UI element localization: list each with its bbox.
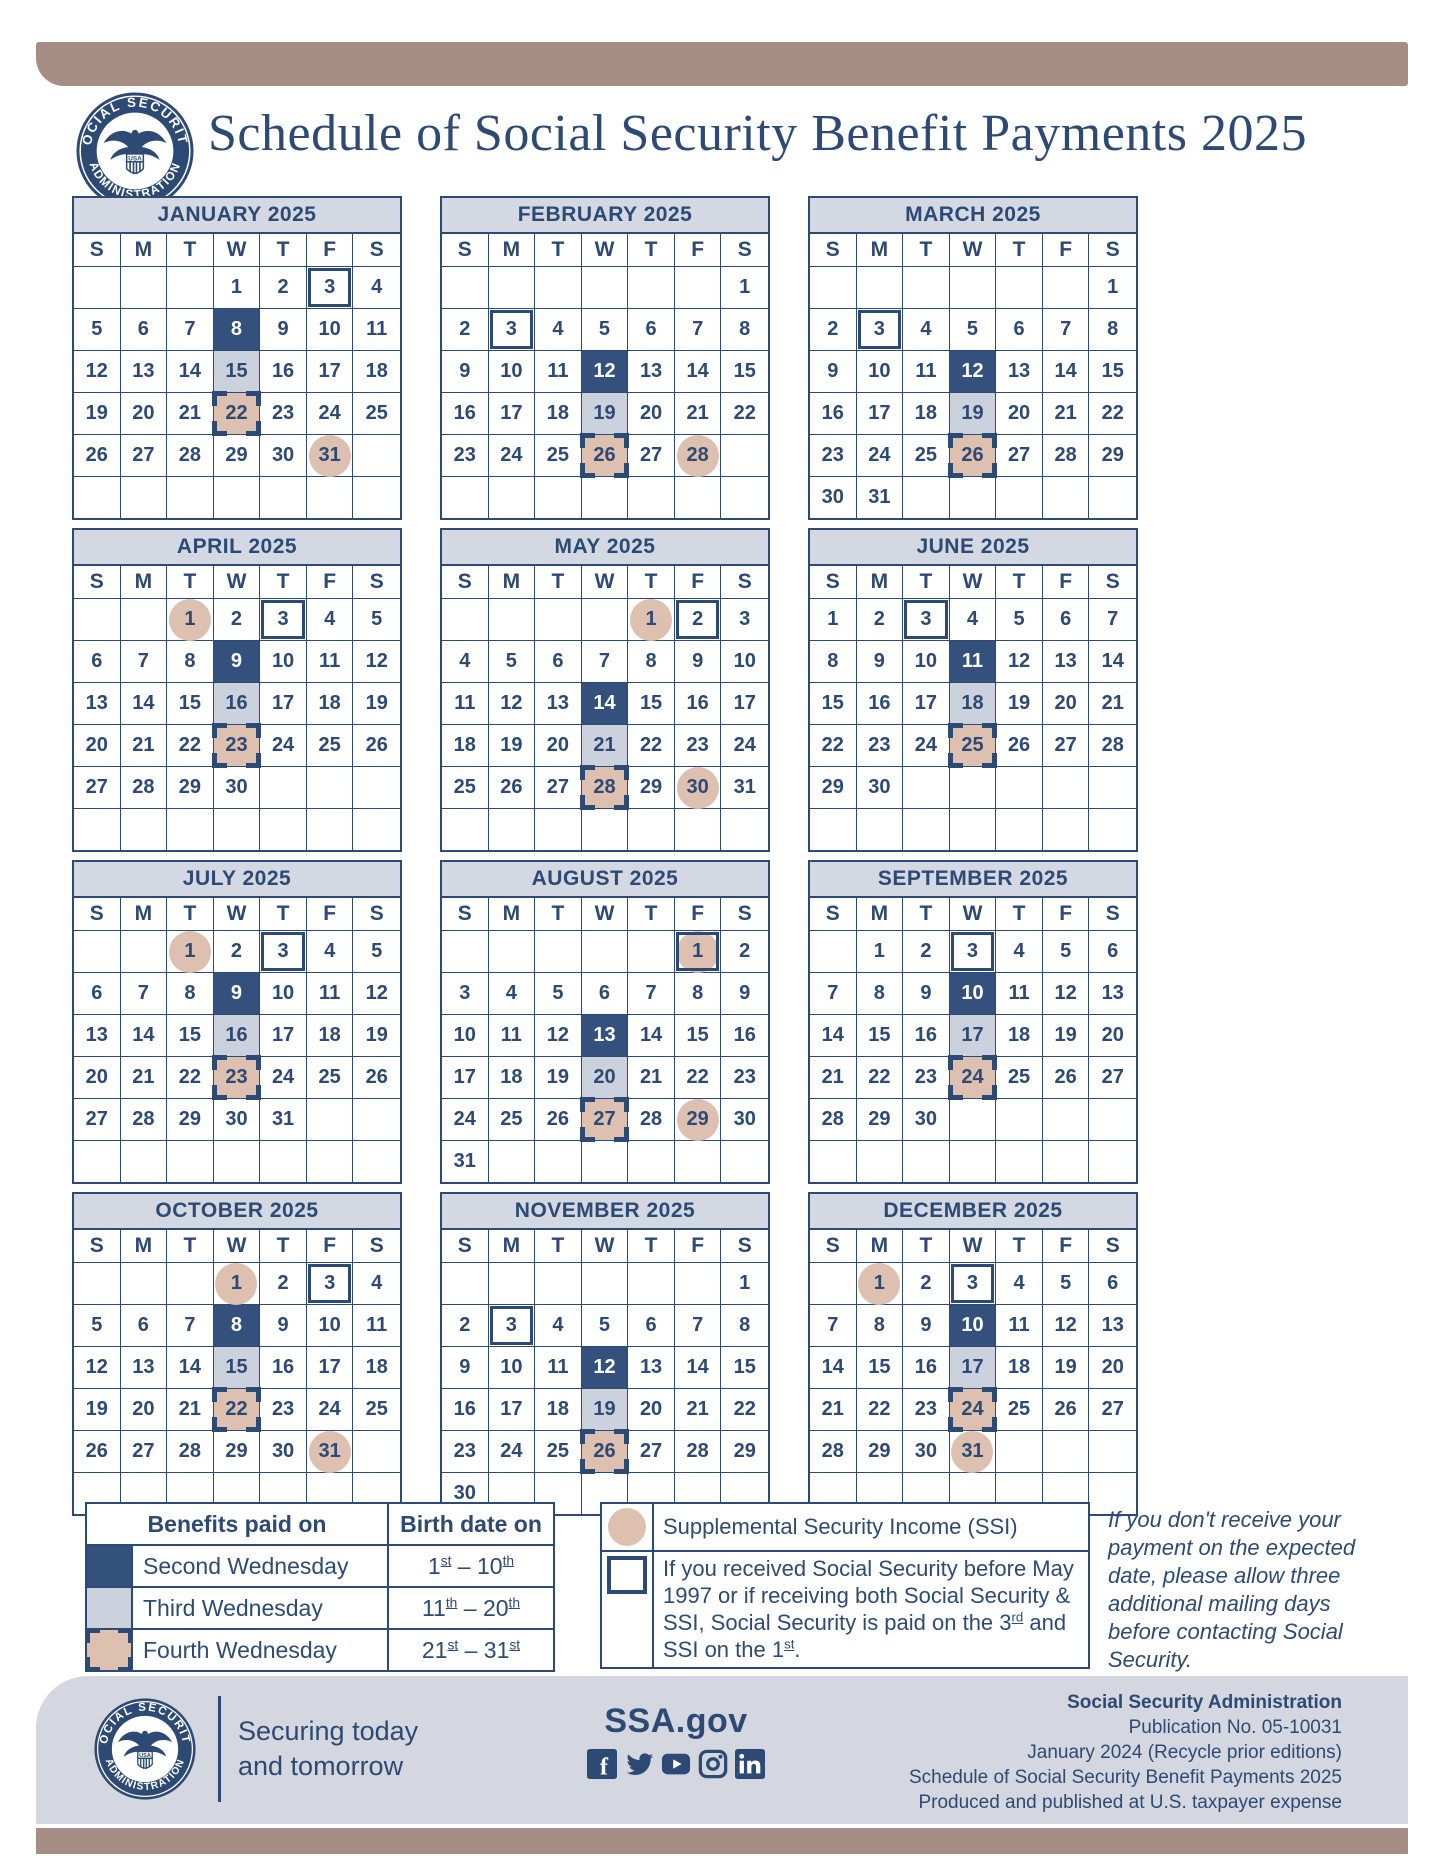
day-number: 17 [272, 1024, 294, 1046]
corner-mark [614, 1127, 629, 1142]
day-16: 16 [675, 683, 722, 725]
ssi-circle-swatch [608, 1508, 646, 1546]
ssa-gov-link[interactable]: SSA.gov [536, 1702, 816, 1741]
day-number: 20 [1102, 1024, 1124, 1046]
weekday-label: S [353, 898, 400, 931]
day-5: 5 [353, 599, 400, 641]
day-number: 13 [547, 692, 569, 714]
day-empty [1089, 1099, 1136, 1141]
weekday-label: F [1043, 234, 1090, 267]
day-number: 8 [231, 318, 242, 340]
day-number: 19 [1055, 1024, 1077, 1046]
weekday-label: S [721, 1230, 768, 1263]
day-number: 15 [640, 692, 662, 714]
weekday-label: S [1089, 898, 1136, 931]
day-number: 4 [552, 318, 563, 340]
publication-line: Social Security Administration [909, 1690, 1342, 1715]
day-30: 30 [214, 767, 261, 809]
weekday-label: T [260, 234, 307, 267]
day-number: 18 [319, 1024, 341, 1046]
day-18: 18 [442, 725, 489, 767]
linkedin-icon[interactable] [735, 1749, 765, 1779]
corner-mark [982, 723, 997, 738]
day-empty [167, 1141, 214, 1182]
day-number: 27 [86, 1108, 108, 1130]
facebook-icon[interactable]: f [587, 1749, 617, 1779]
day-number: 18 [961, 692, 983, 714]
legend-label: Second Wednesday [131, 1546, 387, 1586]
corner-mark [212, 1055, 227, 1070]
day-9: 9 [260, 1305, 307, 1347]
day-number: 8 [646, 650, 657, 672]
day-empty [167, 267, 214, 309]
day-empty [582, 267, 629, 309]
day-10: 10 [307, 309, 354, 351]
day-number: 25 [454, 776, 476, 798]
corner-mark [246, 391, 261, 406]
day-number: 25 [547, 1440, 569, 1462]
day-number: 5 [599, 1314, 610, 1336]
day-number: 22 [1102, 402, 1124, 424]
day-number: 13 [86, 692, 108, 714]
day-6: 6 [121, 309, 168, 351]
day-20: 20 [1089, 1347, 1136, 1389]
day-9: 9 [903, 1305, 950, 1347]
day-empty [214, 809, 261, 850]
day-number: 13 [640, 360, 662, 382]
weekday-label: T [628, 898, 675, 931]
day-23: 23 [260, 1389, 307, 1431]
day-empty [1043, 267, 1090, 309]
day-17: 17 [307, 1347, 354, 1389]
weekday-label: S [810, 234, 857, 267]
day-empty [628, 1141, 675, 1182]
day-number: 10 [500, 360, 522, 382]
day-number: 31 [734, 776, 756, 798]
day-16: 16 [442, 393, 489, 435]
month-august: AUGUST 2025SMTWTFS1234567891011121314151… [440, 860, 770, 1184]
day-20: 20 [628, 393, 675, 435]
day-25: 25 [996, 1057, 1043, 1099]
day-3: 3 [950, 1263, 997, 1305]
day-2: 2 [721, 931, 768, 973]
day-number: 6 [1107, 940, 1118, 962]
day-number: 20 [547, 734, 569, 756]
range-to: 31 [484, 1637, 510, 1663]
day-number: 19 [961, 402, 983, 424]
day-empty [810, 1141, 857, 1182]
weekday-header-row: SMTWTFS [74, 898, 400, 931]
day-16: 16 [903, 1347, 950, 1389]
day-19: 19 [582, 393, 629, 435]
corner-mark [246, 723, 261, 738]
corner-mark [614, 765, 629, 780]
day-empty [582, 809, 629, 850]
month-december: DECEMBER 2025SMTWTFS12345678910111213141… [808, 1192, 1138, 1516]
day-number: 22 [687, 1066, 709, 1088]
day-number: 11 [501, 1024, 522, 1046]
weekday-label: S [353, 1230, 400, 1263]
month-days: 1234567891011121314151617181920212223242… [810, 267, 1136, 518]
day-empty [721, 477, 768, 518]
day-empty [1089, 767, 1136, 809]
day-22: 22 [628, 725, 675, 767]
day-number: 18 [500, 1066, 522, 1088]
day-19: 19 [1043, 1015, 1090, 1057]
day-number: 1 [1107, 276, 1118, 298]
day-empty [903, 1141, 950, 1182]
corner-mark [580, 1127, 595, 1142]
day-number: 21 [179, 1398, 201, 1420]
day-empty [74, 267, 121, 309]
weekday-label: T [996, 234, 1043, 267]
day-empty [1043, 1099, 1090, 1141]
day-27: 27 [628, 435, 675, 477]
weekday-label: S [74, 898, 121, 931]
day-number: 25 [961, 734, 983, 756]
day-number: 20 [132, 1398, 154, 1420]
svg-text:f: f [600, 1753, 609, 1779]
day-number: 4 [552, 1314, 563, 1336]
day-12: 12 [353, 641, 400, 683]
day-31: 31 [260, 1099, 307, 1141]
day-22: 22 [167, 725, 214, 767]
day-number: 14 [593, 692, 615, 714]
day-27: 27 [74, 767, 121, 809]
day-number: 19 [1008, 692, 1030, 714]
weekday-label: M [121, 1230, 168, 1263]
day-number: 10 [961, 1314, 983, 1336]
day-empty [996, 809, 1043, 850]
day-4: 4 [903, 309, 950, 351]
ordinal-sup: st [441, 1553, 452, 1568]
day-number: 21 [1102, 692, 1124, 714]
day-number: 30 [868, 776, 890, 798]
legend-header-row: Benefits paid on Birth date on [87, 1504, 553, 1546]
day-28: 28 [167, 1431, 214, 1473]
day-number: 28 [1055, 444, 1077, 466]
day-23: 23 [721, 1057, 768, 1099]
tagline-line: Securing today [238, 1714, 418, 1749]
day-number: 11 [1008, 1314, 1029, 1336]
day-empty [353, 1431, 400, 1473]
day-19: 19 [353, 683, 400, 725]
day-3: 3 [950, 931, 997, 973]
weekday-label: T [903, 1230, 950, 1263]
day-7: 7 [628, 973, 675, 1015]
day-number: 24 [500, 444, 522, 466]
day-27: 27 [121, 1431, 168, 1473]
day-30: 30 [675, 767, 722, 809]
day-number: 29 [1102, 444, 1124, 466]
day-empty [535, 267, 582, 309]
day-number: 25 [915, 444, 937, 466]
day-number: 26 [366, 734, 388, 756]
day-number: 8 [739, 318, 750, 340]
day-number: 11 [547, 1356, 568, 1378]
month-title: DECEMBER 2025 [810, 1194, 1136, 1230]
day-empty [353, 767, 400, 809]
pre1997-legend-row: If you received Social Security before M… [602, 1552, 1088, 1667]
day-6: 6 [996, 309, 1043, 351]
day-number: 21 [687, 402, 709, 424]
day-number: 20 [640, 1398, 662, 1420]
day-empty [535, 599, 582, 641]
day-14: 14 [167, 351, 214, 393]
month-title: SEPTEMBER 2025 [810, 862, 1136, 898]
day-1: 1 [214, 267, 261, 309]
day-number: 27 [1102, 1066, 1124, 1088]
day-13: 13 [996, 351, 1043, 393]
range-to: 10 [477, 1553, 503, 1579]
day-17: 17 [950, 1015, 997, 1057]
day-number: 18 [366, 360, 388, 382]
day-number: 8 [739, 1314, 750, 1336]
day-9: 9 [214, 973, 261, 1015]
day-number: 5 [1014, 608, 1025, 630]
weekday-label: F [307, 898, 354, 931]
footer: SOCIAL SECURITYADMINISTRATIONUSA Securin… [36, 1676, 1408, 1824]
day-empty [857, 1141, 904, 1182]
day-number: 5 [967, 318, 978, 340]
day-2: 2 [442, 1305, 489, 1347]
day-number: 15 [179, 692, 201, 714]
corner-mark [85, 1657, 100, 1672]
day-21: 21 [121, 1057, 168, 1099]
day-number: 27 [593, 1108, 615, 1130]
day-number: 16 [454, 402, 476, 424]
day-26: 26 [582, 435, 629, 477]
day-number: 28 [593, 776, 615, 798]
corner-mark [246, 753, 261, 768]
day-empty [857, 809, 904, 850]
day-number: 27 [86, 776, 108, 798]
day-number: 6 [1060, 608, 1071, 630]
corner-mark [580, 765, 595, 780]
corner-mark [212, 391, 227, 406]
corner-mark [212, 1085, 227, 1100]
day-number: 15 [687, 1024, 709, 1046]
day-number: 30 [915, 1108, 937, 1130]
day-23: 23 [214, 725, 261, 767]
day-number: 13 [1102, 982, 1124, 1004]
day-25: 25 [535, 1431, 582, 1473]
day-17: 17 [442, 1057, 489, 1099]
day-5: 5 [489, 641, 536, 683]
day-empty [810, 931, 857, 973]
legend-range: 1st – 10th [387, 1546, 553, 1586]
day-number: 13 [132, 360, 154, 382]
day-10: 10 [903, 641, 950, 683]
day-2: 2 [810, 309, 857, 351]
day-number: 3 [920, 608, 931, 630]
day-number: 1 [739, 1272, 750, 1294]
day-number: 26 [593, 1440, 615, 1462]
day-number: 12 [86, 360, 108, 382]
weekday-label: S [353, 234, 400, 267]
youtube-icon[interactable] [661, 1749, 691, 1779]
day-number: 6 [138, 1314, 149, 1336]
month-title: FEBRUARY 2025 [442, 198, 768, 234]
weekday-label: M [121, 898, 168, 931]
day-15: 15 [810, 683, 857, 725]
range-dash: – [457, 1595, 483, 1621]
day-empty [1043, 1431, 1090, 1473]
day-number: 30 [225, 776, 247, 798]
day-number: 19 [547, 1066, 569, 1088]
gray-swatch [87, 1588, 131, 1628]
day-number: 30 [272, 1440, 294, 1462]
day-7: 7 [810, 973, 857, 1015]
corner-mark [614, 433, 629, 448]
day-empty [628, 267, 675, 309]
day-8: 8 [167, 641, 214, 683]
day-30: 30 [214, 1099, 261, 1141]
day-26: 26 [489, 767, 536, 809]
day-13: 13 [74, 683, 121, 725]
day-4: 4 [353, 1263, 400, 1305]
day-3: 3 [857, 309, 904, 351]
month-title: MARCH 2025 [810, 198, 1136, 234]
day-number: 13 [86, 1024, 108, 1046]
legend-swatch-cell [87, 1588, 131, 1628]
ordinal-sup: th [509, 1595, 521, 1610]
day-number: 3 [874, 318, 885, 340]
day-14: 14 [810, 1347, 857, 1389]
day-empty [675, 1141, 722, 1182]
day-number: 2 [278, 1272, 289, 1294]
day-6: 6 [74, 973, 121, 1015]
day-15: 15 [167, 683, 214, 725]
weekday-label: W [582, 898, 629, 931]
day-number: 30 [687, 776, 709, 798]
day-number: 18 [366, 1356, 388, 1378]
day-number: 21 [132, 734, 154, 756]
weekday-label: S [74, 1230, 121, 1263]
day-number: 12 [961, 360, 983, 382]
corner-mark [982, 463, 997, 478]
day-7: 7 [810, 1305, 857, 1347]
legend-label: Fourth Wednesday [131, 1630, 387, 1670]
weekday-label: S [1089, 1230, 1136, 1263]
corner-mark [614, 463, 629, 478]
day-19: 19 [996, 683, 1043, 725]
day-6: 6 [535, 641, 582, 683]
day-number: 17 [961, 1024, 983, 1046]
corner-mark [580, 433, 595, 448]
day-26: 26 [950, 435, 997, 477]
day-number: 22 [868, 1398, 890, 1420]
day-17: 17 [489, 393, 536, 435]
corner-mark [614, 795, 629, 810]
instagram-icon[interactable] [698, 1749, 728, 1779]
day-number: 7 [599, 650, 610, 672]
ssa-seal-logo-footer: SOCIAL SECURITYADMINISTRATIONUSA [94, 1698, 196, 1800]
day-17: 17 [260, 1015, 307, 1057]
day-16: 16 [214, 683, 261, 725]
day-number: 1 [231, 1272, 242, 1294]
day-7: 7 [1043, 309, 1090, 351]
ordinal-sup: st [447, 1637, 458, 1652]
day-empty [628, 477, 675, 518]
day-empty [1089, 809, 1136, 850]
day-number: 26 [961, 444, 983, 466]
day-empty [489, 599, 536, 641]
legend-range: 11th – 20th [387, 1588, 553, 1628]
day-number: 4 [920, 318, 931, 340]
day-20: 20 [74, 725, 121, 767]
day-20: 20 [628, 1389, 675, 1431]
day-number: 7 [1107, 608, 1118, 630]
month-days: 1234567891011121314151617181920212223242… [74, 1263, 400, 1514]
day-empty [996, 1141, 1043, 1182]
day-empty [442, 599, 489, 641]
day-number: 18 [547, 1398, 569, 1420]
day-number: 16 [868, 692, 890, 714]
day-23: 23 [903, 1057, 950, 1099]
day-number: 23 [915, 1398, 937, 1420]
pre1997-text-part: . [794, 1637, 800, 1662]
corner-mark [948, 1055, 963, 1070]
day-empty [996, 1431, 1043, 1473]
day-14: 14 [810, 1015, 857, 1057]
weekday-label: T [260, 1230, 307, 1263]
publication-line: January 2024 (Recycle prior editions) [909, 1740, 1342, 1765]
day-number: 7 [692, 318, 703, 340]
day-number: 29 [734, 1440, 756, 1462]
day-25: 25 [307, 1057, 354, 1099]
range-from: 1 [428, 1553, 441, 1579]
day-number: 2 [459, 1314, 470, 1336]
day-number: 17 [500, 1398, 522, 1420]
day-26: 26 [353, 725, 400, 767]
day-16: 16 [260, 351, 307, 393]
day-11: 11 [535, 1347, 582, 1389]
day-12: 12 [582, 1347, 629, 1389]
day-number: 22 [225, 402, 247, 424]
day-number: 20 [1008, 402, 1030, 424]
day-11: 11 [950, 641, 997, 683]
day-13: 13 [121, 1347, 168, 1389]
corner-mark [580, 1429, 595, 1444]
day-6: 6 [1043, 599, 1090, 641]
twitter-icon[interactable] [624, 1749, 654, 1779]
day-15: 15 [214, 351, 261, 393]
month-title: JUNE 2025 [810, 530, 1136, 566]
corner-mark [614, 1429, 629, 1444]
day-number: 21 [822, 1398, 844, 1420]
weekday-label: S [353, 566, 400, 599]
day-empty [675, 1263, 722, 1305]
weekday-label: T [167, 566, 214, 599]
day-number: 10 [272, 650, 294, 672]
weekday-label: M [121, 234, 168, 267]
day-7: 7 [167, 1305, 214, 1347]
day-15: 15 [857, 1015, 904, 1057]
calendar-grid: JANUARY 2025SMTWTFS123456789101112131415… [72, 196, 1138, 1516]
day-28: 28 [675, 435, 722, 477]
weekday-label: W [950, 566, 997, 599]
day-24: 24 [307, 393, 354, 435]
day-empty [121, 477, 168, 518]
day-3: 3 [442, 973, 489, 1015]
day-number: 23 [272, 1398, 294, 1420]
day-empty [307, 809, 354, 850]
day-13: 13 [1089, 1305, 1136, 1347]
day-number: 4 [967, 608, 978, 630]
day-2: 2 [903, 1263, 950, 1305]
day-19: 19 [74, 393, 121, 435]
